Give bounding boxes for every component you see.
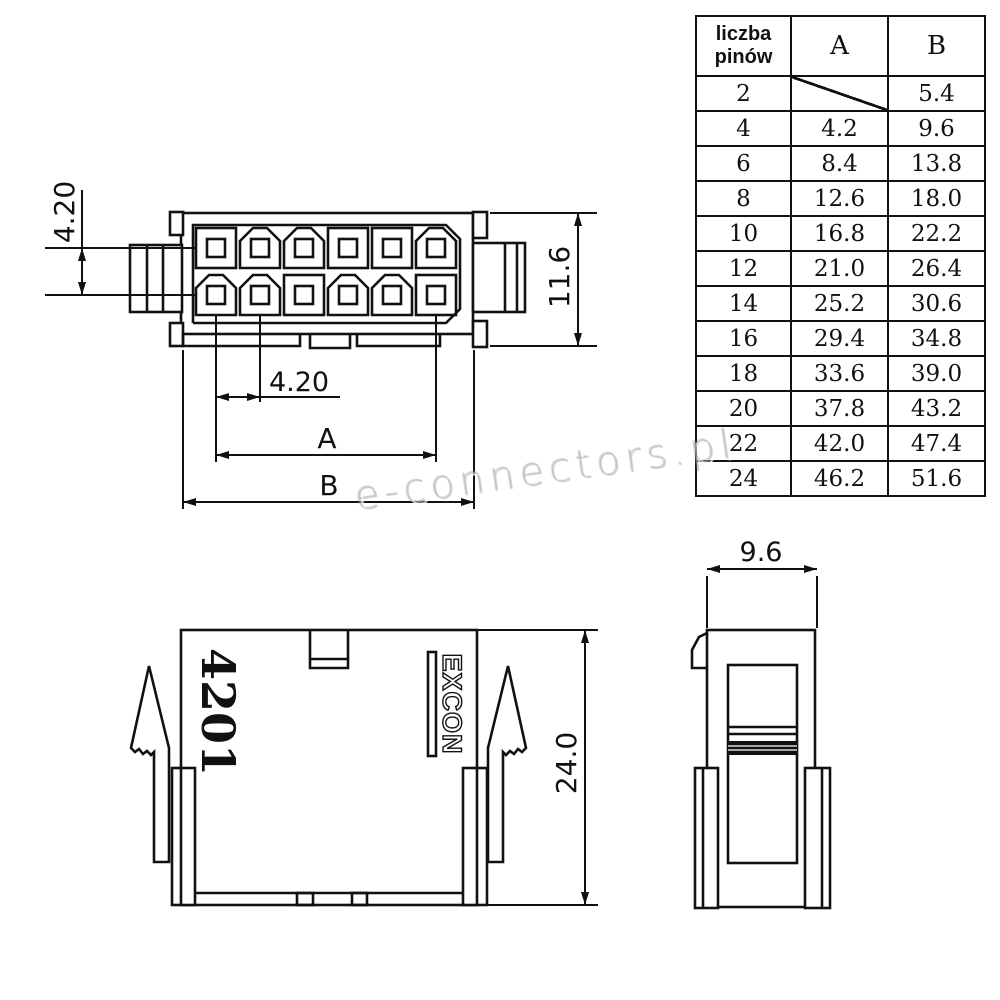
table-row: 1833.639.0 — [696, 356, 985, 391]
table-row: 1425.230.6 — [696, 286, 985, 321]
table-header-pins: liczba pinów — [696, 16, 791, 76]
dim-height-label: 11.6 — [543, 246, 576, 308]
profile-body — [692, 630, 830, 908]
diagonal-cell — [791, 76, 888, 111]
latch-arrow-left — [131, 666, 169, 862]
table-row: 1629.434.8 — [696, 321, 985, 356]
table-row: 25.4 — [696, 76, 985, 111]
dim-b-label: B — [319, 469, 338, 502]
header-pins-line1: liczba — [716, 23, 772, 45]
table-row: 2242.047.4 — [696, 426, 985, 461]
dim-col-pitch-label: 4.20 — [269, 367, 329, 398]
dim-profile-width: 9.6 — [707, 537, 817, 628]
dim-a-label: A — [317, 422, 336, 455]
table-row: 1016.822.2 — [696, 216, 985, 251]
profile-view: 9.6 — [660, 530, 870, 930]
table-header-a: A — [791, 16, 888, 76]
front-view: 4.20 11.6 4.20 A — [0, 150, 660, 530]
table-header-row: liczba pinów A B — [696, 16, 985, 76]
dimensions-table: liczba pinów A B 25.4 44.29.6 68.413.8 8… — [695, 15, 986, 497]
drawing-canvas: 4.20 11.6 4.20 A — [0, 0, 1000, 1000]
table-row: 2446.251.6 — [696, 461, 985, 496]
table-row: 812.618.0 — [696, 181, 985, 216]
side-view: 4201 EXCON 24.0 — [100, 590, 620, 930]
pin-cavities — [196, 228, 456, 315]
dim-row-pitch-label: 4.20 — [48, 181, 81, 243]
dim-profile-width-label: 9.6 — [740, 537, 783, 568]
table-row: 44.29.6 — [696, 111, 985, 146]
brand-logo-text: EXCON — [437, 653, 467, 754]
table-row: 68.413.8 — [696, 146, 985, 181]
latch-arrow-right — [488, 666, 526, 862]
dim-side-height-label: 24.0 — [550, 732, 583, 794]
part-number-label: 4201 — [191, 648, 245, 776]
brand-logo: EXCON — [428, 652, 467, 756]
header-pins-line2: pinów — [715, 46, 773, 68]
table-row: 1221.026.4 — [696, 251, 985, 286]
table-header-b: B — [888, 16, 985, 76]
table-row: 2037.843.2 — [696, 391, 985, 426]
